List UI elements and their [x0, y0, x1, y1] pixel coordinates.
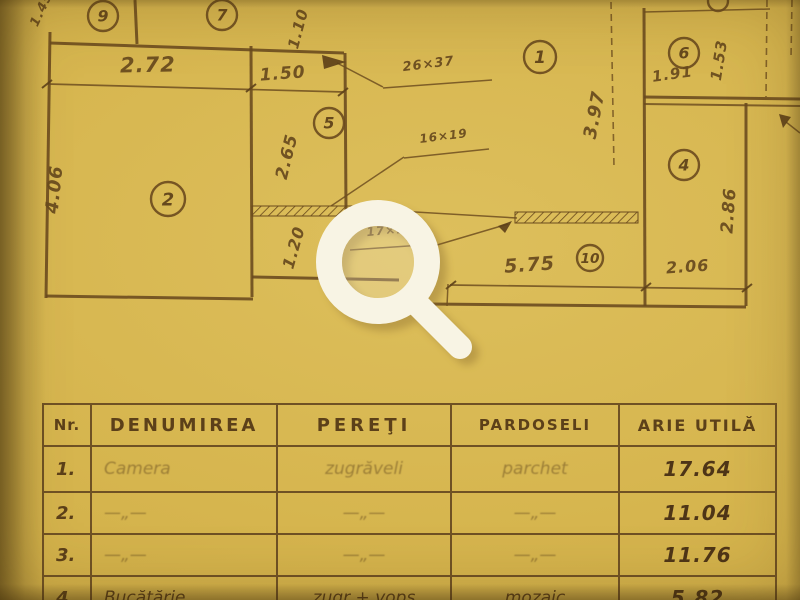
column-header: ARIE UTILĂ: [619, 404, 776, 446]
cell-nr: 4.: [43, 576, 91, 600]
room-number-10: 10: [581, 251, 600, 267]
dimension-label: 5.75: [503, 252, 555, 277]
cell-denumirea: —„—: [91, 492, 277, 534]
plan-line: [251, 46, 252, 297]
cell-nr: 2.: [43, 492, 91, 534]
cell-pereti: —„—: [277, 492, 451, 534]
dimension-label: 1.10: [284, 7, 312, 51]
plan-line: [345, 53, 346, 210]
magnifier-handle: [415, 302, 460, 347]
room-number-1: 1: [534, 47, 546, 67]
plan-line: [430, 304, 746, 307]
plan-line: [450, 285, 746, 289]
dimension-label: 2.72: [120, 53, 176, 78]
plan-line: [791, 0, 792, 58]
table-row: 3.—„——„——„—11.76: [43, 534, 776, 576]
dimension-label: 2.65: [272, 132, 303, 181]
cell-arie: 5.82: [619, 576, 776, 600]
plan-line: [48, 84, 344, 92]
column-header: PARDOSELI: [451, 404, 619, 446]
hatched-wall: [515, 212, 638, 223]
scanned-floorplan-document: 971654210 2.721.501.101.454.062.651.203.…: [0, 0, 800, 600]
cell-arie: 11.76: [619, 534, 776, 576]
plan-line: [644, 8, 645, 306]
plan-line: [644, 104, 800, 106]
cell-pereti: —„—: [277, 534, 451, 576]
plan-line: [331, 157, 404, 206]
dimension-label: 1.45: [27, 0, 56, 29]
cell-arie: 11.04: [619, 492, 776, 534]
room-number-9: 9: [98, 7, 109, 26]
dimension-label: 26×37: [402, 54, 456, 75]
room-number-6: 6: [679, 44, 690, 63]
plan-line: [786, 122, 800, 133]
cell-nr: 3.: [43, 534, 91, 576]
magnifier-lens: [342, 226, 414, 298]
plan-line: [135, 0, 137, 44]
plan-line: [611, 2, 614, 168]
room-finish-table: Nr.DENUMIREAPEREŢIPARDOSELIARIE UTILĂ1.C…: [42, 403, 777, 600]
cell-pardoseli: parchet: [451, 446, 619, 492]
dimension-label: 1.91: [651, 62, 694, 86]
dimension-label: 1.50: [259, 62, 306, 85]
dimension-label: 3.97: [580, 89, 610, 141]
cell-pereti: zugr + vops: [277, 576, 451, 600]
column-header: DENUMIREA: [91, 404, 277, 446]
arrowhead: [498, 221, 512, 233]
cell-pardoseli: —„—: [451, 534, 619, 576]
plan-line: [404, 149, 489, 158]
table-row: 4.Bucătăriezugr + vopsmozaic5.82: [43, 576, 776, 600]
dimension-label: 4.06: [41, 164, 67, 215]
plan-line: [644, 9, 770, 12]
plan-line: [766, 0, 767, 97]
arrowhead: [779, 114, 791, 128]
dimension-label: 16×19: [419, 126, 469, 146]
room-number-2: 2: [162, 189, 174, 210]
cutoff-room-circle: [708, 0, 728, 11]
cell-pardoseli: mozaic: [451, 576, 619, 600]
plan-line: [383, 80, 492, 88]
table-row: 1.Camerazugrăveliparchet17.64: [43, 446, 776, 492]
table-row: 2.—„——„——„—11.04: [43, 492, 776, 534]
room-number-7: 7: [217, 6, 228, 25]
cell-pereti: zugrăveli: [277, 446, 451, 492]
cell-denumirea: Bucătărie: [91, 576, 277, 600]
column-header: PEREŢI: [277, 404, 451, 446]
cell-arie: 17.64: [619, 446, 776, 492]
dimension-label: 1.53: [707, 39, 731, 82]
room-number-4: 4: [678, 156, 690, 175]
column-header: Nr.: [43, 404, 91, 446]
magnifier-icon[interactable]: [329, 213, 467, 353]
arrowhead: [322, 55, 346, 69]
cell-pardoseli: —„—: [451, 492, 619, 534]
cell-denumirea: Camera: [91, 446, 277, 492]
plan-line: [644, 97, 800, 99]
cell-nr: 1.: [43, 446, 91, 492]
cell-denumirea: —„—: [91, 534, 277, 576]
room-number-5: 5: [324, 114, 335, 133]
dimension-label: 2.86: [717, 187, 740, 234]
dimension-label: 2.06: [665, 256, 710, 278]
plan-line: [46, 296, 253, 299]
dimension-label: 1.20: [279, 224, 309, 271]
plan-line: [437, 224, 508, 245]
table-header-row: Nr.DENUMIREAPEREŢIPARDOSELIARIE UTILĂ: [43, 404, 776, 446]
